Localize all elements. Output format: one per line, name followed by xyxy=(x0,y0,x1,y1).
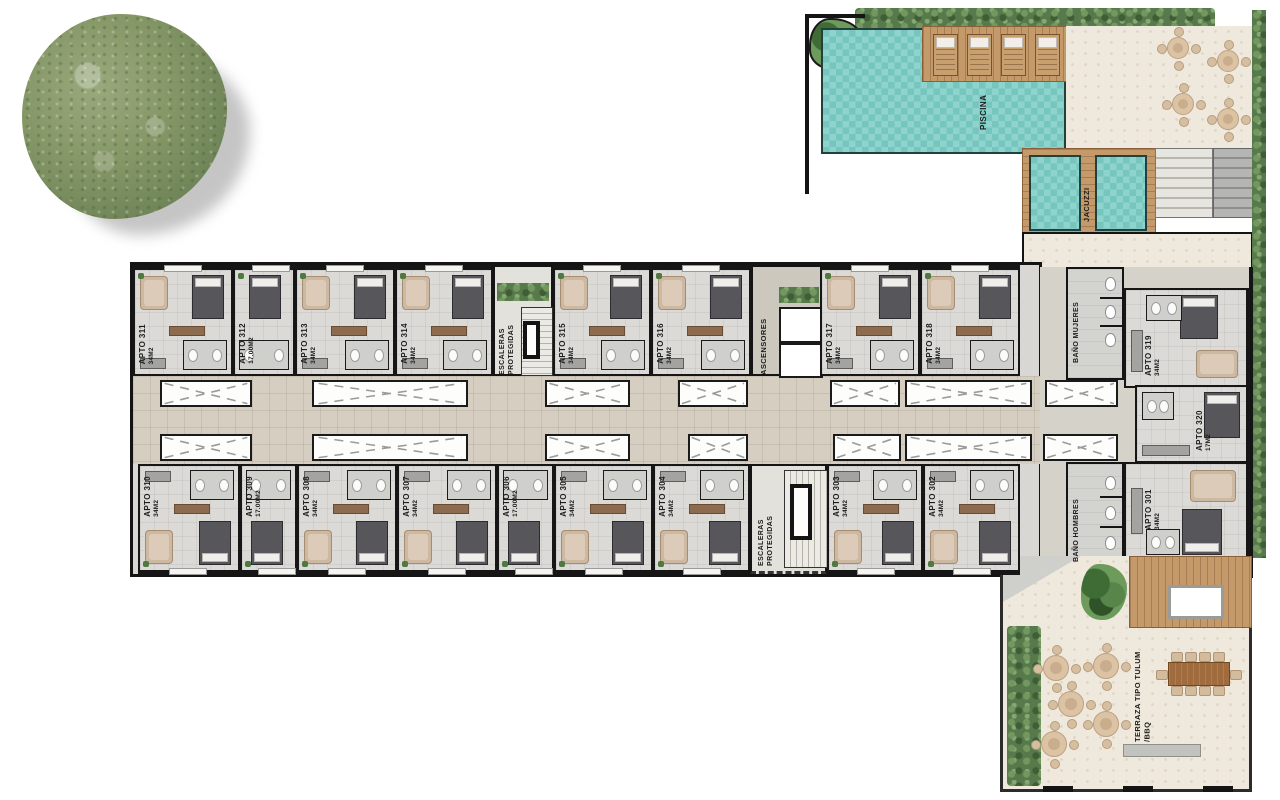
round-table xyxy=(1043,655,1069,681)
unit-id: APTO 313 xyxy=(300,323,309,364)
bed xyxy=(1180,295,1218,339)
sun-lounger xyxy=(1001,34,1026,76)
toilet-icon xyxy=(1105,476,1116,490)
corridor-void xyxy=(678,380,748,407)
sofa xyxy=(140,276,168,310)
apartment-unit: APTO 31034M2 xyxy=(138,464,240,575)
corridor-void xyxy=(833,434,901,461)
window xyxy=(258,568,296,575)
right-edge-hedge xyxy=(1252,10,1266,558)
chair xyxy=(1230,670,1242,680)
corridor-void xyxy=(905,434,1032,461)
apartment-unit: APTO 31434M2 xyxy=(395,265,493,376)
chair xyxy=(1067,681,1077,691)
apartment-unit: APTO 30234M2 xyxy=(923,464,1020,575)
sofa xyxy=(561,530,589,564)
bed xyxy=(456,521,488,565)
unit-size: 34M2 xyxy=(666,323,674,364)
corridor-void xyxy=(1045,380,1118,407)
stairs-top-core: ESCALERASPROTEGIDAS xyxy=(493,265,553,376)
void-x-icon xyxy=(1047,382,1116,405)
chair xyxy=(1196,100,1206,110)
chair xyxy=(1052,645,1062,655)
sofa xyxy=(930,530,958,564)
chair xyxy=(1086,700,1096,710)
void-x-icon xyxy=(1045,436,1116,459)
sofa xyxy=(927,276,955,310)
dining-table xyxy=(1168,662,1230,686)
window xyxy=(857,568,895,575)
unit-size: 34M2 xyxy=(310,323,318,364)
chair xyxy=(1121,720,1131,730)
desk xyxy=(433,504,469,514)
window xyxy=(515,568,553,575)
plant-icon xyxy=(143,561,149,567)
round-table xyxy=(1217,50,1239,72)
window xyxy=(851,265,889,272)
plant-icon xyxy=(928,561,934,567)
desk xyxy=(863,504,899,514)
bathroom xyxy=(347,470,391,500)
apartment-unit: APTO 31834M2 xyxy=(920,265,1020,376)
bathroom xyxy=(601,340,645,370)
terrace-left-hedge xyxy=(1007,626,1041,786)
plant-icon xyxy=(245,561,251,567)
unit-label: APTO 31334M2 xyxy=(300,323,318,364)
corridor-void xyxy=(830,380,900,407)
chair xyxy=(1102,681,1112,691)
unit-id: APTO 312 xyxy=(238,323,247,364)
bathroom xyxy=(603,470,647,500)
bed xyxy=(612,521,644,565)
unit-label: APTO 30134M2 xyxy=(1144,472,1162,530)
bed xyxy=(1182,509,1222,555)
unit-id: APTO 316 xyxy=(656,323,665,364)
corridor-void xyxy=(905,380,1032,407)
plant-icon xyxy=(400,273,406,279)
desk xyxy=(331,326,367,336)
chair xyxy=(1179,83,1189,93)
plant-icon xyxy=(559,561,565,567)
window xyxy=(951,265,989,272)
chair xyxy=(1241,57,1251,67)
plant-icon xyxy=(832,561,838,567)
chair xyxy=(1207,57,1217,67)
desk xyxy=(431,326,467,336)
sofa xyxy=(560,276,588,310)
unit-label: APTO 31934M2 xyxy=(1144,318,1162,376)
bed xyxy=(710,275,742,319)
sun-lounger xyxy=(933,34,958,76)
window xyxy=(585,568,623,575)
unit-size: 17.00M2 xyxy=(255,476,263,517)
window xyxy=(169,568,207,575)
kitchen-counter xyxy=(1142,445,1190,456)
bed xyxy=(709,521,741,565)
chair xyxy=(1199,652,1211,662)
chair xyxy=(1171,652,1183,662)
unit-size: 34M2 xyxy=(568,323,576,364)
chair xyxy=(1048,700,1058,710)
void-x-icon xyxy=(314,382,466,405)
bed xyxy=(979,275,1011,319)
sofa xyxy=(827,276,855,310)
plant-icon xyxy=(300,273,306,279)
void-x-icon xyxy=(835,436,899,459)
stairs-top-landing xyxy=(523,321,540,359)
unit-label: APTO 31834M2 xyxy=(925,323,943,364)
round-table xyxy=(1041,731,1067,757)
chair xyxy=(1171,686,1183,696)
desk xyxy=(590,504,626,514)
plant-icon xyxy=(825,273,831,279)
unit-size: 34M2 xyxy=(668,476,676,517)
elevator-cab-1 xyxy=(779,307,823,343)
chair xyxy=(1083,662,1093,672)
bathroom xyxy=(870,340,914,370)
unit-label: APTO 30917.00M2 xyxy=(245,476,263,517)
stairs-top-planter xyxy=(497,283,549,301)
bathroom xyxy=(873,470,917,500)
bath-women: BAÑO MUJERES xyxy=(1066,267,1124,380)
apartment-unit: APTO 30434M2 xyxy=(653,464,750,575)
unit-id: APTO 314 xyxy=(400,323,409,364)
chair xyxy=(1207,115,1217,125)
corridor-void xyxy=(1043,434,1118,461)
chair xyxy=(1213,652,1225,662)
corridor-void xyxy=(160,434,252,461)
unit-size: 34M2 xyxy=(935,323,943,364)
apartment-unit: APTO 32017M2 xyxy=(1135,385,1250,463)
unit-size: 34M2 xyxy=(835,323,843,364)
bed xyxy=(979,521,1011,565)
void-x-icon xyxy=(907,382,1030,405)
jacuzzi-tub-right xyxy=(1095,155,1147,231)
bathroom xyxy=(701,340,745,370)
window xyxy=(428,568,466,575)
unit-label: APTO 30234M2 xyxy=(928,476,946,517)
chair xyxy=(1224,74,1234,84)
unit-label: APTO 30334M2 xyxy=(832,476,850,517)
window xyxy=(252,265,290,272)
apartment-unit: APTO 31334M2 xyxy=(295,265,395,376)
bed xyxy=(356,521,388,565)
chair xyxy=(1213,686,1225,696)
corridor-void xyxy=(312,434,468,461)
corridor-void xyxy=(688,434,748,461)
window xyxy=(683,568,721,575)
desk xyxy=(333,504,369,514)
kitchen-counter xyxy=(1131,488,1143,534)
round-table xyxy=(1172,93,1194,115)
apartment-unit: APTO 30734M2 xyxy=(397,464,497,575)
apartment-unit: APTO 31534M2 xyxy=(553,265,651,376)
floor-plan-canvas: PISCINA JACUZZI ESCALERASPROTEGIDAS xyxy=(0,0,1280,800)
unit-label: APTO 31434M2 xyxy=(400,323,418,364)
steps-light xyxy=(1155,148,1213,218)
stairs-bottom-core: ESCALERASPROTEGIDAS xyxy=(750,464,827,574)
chair xyxy=(1179,117,1189,127)
unit-id: APTO 303 xyxy=(832,476,841,517)
chair xyxy=(1174,61,1184,71)
apartment-unit: APTO 30917.00M2 xyxy=(240,464,297,575)
bathroom xyxy=(700,470,744,500)
jacuzzi-label: JACUZZI xyxy=(1082,162,1091,222)
chair xyxy=(1083,720,1093,730)
plant-icon xyxy=(656,273,662,279)
sun-lounger xyxy=(967,34,992,76)
window xyxy=(682,265,720,272)
chair xyxy=(1185,652,1197,662)
chair xyxy=(1033,664,1043,674)
chair xyxy=(1199,686,1211,696)
elevators-core: ASCENSORES xyxy=(751,265,822,376)
terrace-plant xyxy=(1081,564,1127,620)
unit-id: APTO 307 xyxy=(402,476,411,517)
sofa xyxy=(660,530,688,564)
void-x-icon xyxy=(547,382,628,405)
window xyxy=(425,265,463,272)
sofa xyxy=(145,530,173,564)
sun-lounger xyxy=(1035,34,1060,76)
unit-size: 34M2 xyxy=(938,476,946,517)
void-x-icon xyxy=(832,382,898,405)
toilet-icon xyxy=(1105,277,1116,291)
stairs-bottom-label: ESCALERASPROTEGIDAS xyxy=(758,480,776,566)
sofa xyxy=(402,276,430,310)
void-x-icon xyxy=(680,382,746,405)
sofa xyxy=(302,276,330,310)
stall-wall xyxy=(1100,325,1122,327)
chair xyxy=(1102,739,1112,749)
bathroom xyxy=(970,340,1014,370)
unit-size: 34M2 xyxy=(842,476,850,517)
unit-size: 17.00M2 xyxy=(512,476,520,517)
toilet-icon xyxy=(1105,305,1116,319)
jacuzzi-tub-left xyxy=(1029,155,1081,231)
bathroom xyxy=(443,340,487,370)
elevator-cab-2 xyxy=(779,343,823,378)
apartment-unit: APTO 30534M2 xyxy=(554,464,653,575)
bed xyxy=(199,521,231,565)
apartment-unit: APTO 31734M2 xyxy=(820,265,920,376)
bathroom xyxy=(1146,529,1180,555)
corridor-void xyxy=(312,380,468,407)
void-x-icon xyxy=(162,436,250,459)
unit-label: APTO 31034M2 xyxy=(143,476,161,517)
chair xyxy=(1185,686,1197,696)
chair xyxy=(1102,643,1112,653)
unit-label: APTO 31217.00M2 xyxy=(238,323,256,364)
bath-men-label: BAÑO HOMBRES xyxy=(1073,488,1082,562)
bathroom xyxy=(970,470,1014,500)
apartment-unit: APTO 31934M2 xyxy=(1124,288,1250,388)
elevators-planter xyxy=(779,287,819,303)
unit-label: APTO 30434M2 xyxy=(658,476,676,517)
desk xyxy=(856,326,892,336)
pool-label: PISCINA xyxy=(979,80,989,130)
unit-label: APTO 32017M2 xyxy=(1195,395,1213,451)
bed xyxy=(249,275,281,319)
unit-id: APTO 318 xyxy=(925,323,934,364)
sofa xyxy=(304,530,332,564)
desk xyxy=(687,326,723,336)
plant-icon xyxy=(925,273,931,279)
unit-size: 34M2 xyxy=(153,476,161,517)
unit-id: APTO 306 xyxy=(502,476,511,517)
chair xyxy=(1157,44,1167,54)
tulum-terrace-label: TERRAZA TIPO TULUM/BBQ xyxy=(1133,646,1152,742)
stairs-top-label: ESCALERASPROTEGIDAS xyxy=(499,303,517,375)
bbq-deck xyxy=(1129,556,1252,628)
chair xyxy=(1050,759,1060,769)
bathroom xyxy=(1142,392,1174,420)
chair xyxy=(1071,664,1081,674)
bbq-counter xyxy=(1168,585,1224,619)
plant-icon xyxy=(302,561,308,567)
unit-label: APTO 31634M2 xyxy=(656,323,674,364)
unit-label: APTO 30734M2 xyxy=(402,476,420,517)
apartment-unit: APTO 30134M2 xyxy=(1124,462,1250,562)
chair xyxy=(1162,100,1172,110)
kitchen-counter xyxy=(1131,330,1143,372)
desk xyxy=(174,504,210,514)
terrace-window xyxy=(1123,786,1153,792)
plant-icon xyxy=(402,561,408,567)
desk xyxy=(956,326,992,336)
chair xyxy=(1174,27,1184,37)
bench xyxy=(1123,744,1201,757)
bed xyxy=(452,275,484,319)
plant-icon xyxy=(138,273,144,279)
unit-label: APTO 31534M2 xyxy=(558,323,576,364)
bath-women-label: BAÑO MUJERES xyxy=(1073,293,1082,363)
plant-icon xyxy=(558,273,564,279)
round-table xyxy=(1093,711,1119,737)
desk xyxy=(589,326,625,336)
bathroom xyxy=(345,340,389,370)
stall-wall xyxy=(1100,526,1122,528)
apartment-unit: APTO 30617.00M2 xyxy=(497,464,554,575)
unit-id: APTO 308 xyxy=(302,476,311,517)
unit-id: APTO 304 xyxy=(658,476,667,517)
chair xyxy=(1031,740,1041,750)
unit-id: APTO 315 xyxy=(558,323,567,364)
round-table xyxy=(1058,691,1084,717)
bed xyxy=(508,521,540,565)
unit-size: 34M2 xyxy=(410,323,418,364)
tulum-terrace: TERRAZA TIPO TULUM/BBQ xyxy=(1000,556,1252,792)
elevators-label: ASCENSORES xyxy=(759,305,768,375)
desk xyxy=(959,504,995,514)
unit-id: APTO 317 xyxy=(825,323,834,364)
sofa xyxy=(658,276,686,310)
window xyxy=(583,265,621,272)
apartment-unit: APTO 30334M2 xyxy=(827,464,923,575)
stall-wall xyxy=(1100,496,1122,498)
chair xyxy=(1069,740,1079,750)
chair xyxy=(1156,670,1168,680)
chair xyxy=(1224,40,1234,50)
window xyxy=(164,265,202,272)
window xyxy=(953,568,991,575)
chair xyxy=(1102,701,1112,711)
corridor-void xyxy=(545,434,630,461)
unit-label: APTO 31734M2 xyxy=(825,323,843,364)
sofa xyxy=(834,530,862,564)
stairs-bottom-landing xyxy=(790,484,812,540)
sofa xyxy=(404,530,432,564)
stall-wall xyxy=(1100,297,1122,299)
window xyxy=(328,568,366,575)
pool-lounger-deck xyxy=(922,26,1080,82)
plant-icon xyxy=(658,561,664,567)
unit-id: APTO 302 xyxy=(928,476,937,517)
bed xyxy=(610,275,642,319)
bed xyxy=(192,275,224,319)
unit-id: APTO 310 xyxy=(143,476,152,517)
bed xyxy=(879,275,911,319)
unit-label: APTO 30617.00M2 xyxy=(502,476,520,517)
void-x-icon xyxy=(162,382,250,405)
desk xyxy=(689,504,725,514)
chair xyxy=(1224,132,1234,142)
apartment-unit: APTO 31217.00M2 xyxy=(233,265,295,376)
bed xyxy=(882,521,914,565)
chair xyxy=(1241,115,1251,125)
terrace-window xyxy=(1043,786,1073,792)
sofa xyxy=(1190,470,1236,502)
unit-label: APTO 31134M2 xyxy=(138,324,156,364)
chair xyxy=(1121,662,1131,672)
unit-label: APTO 30834M2 xyxy=(302,476,320,517)
void-x-icon xyxy=(314,436,466,459)
unit-id: APTO 305 xyxy=(559,476,568,517)
window xyxy=(326,265,364,272)
corridor-void xyxy=(545,380,630,407)
plant-icon xyxy=(502,561,508,567)
unit-size: 34M2 xyxy=(412,476,420,517)
chair xyxy=(1052,683,1062,693)
bathroom xyxy=(447,470,491,500)
toilet-icon xyxy=(1105,333,1116,347)
unit-label: APTO 30534M2 xyxy=(559,476,577,517)
unit-size: 34M2 xyxy=(312,476,320,517)
bathroom xyxy=(183,340,227,370)
unit-size: 17.00M2 xyxy=(248,323,256,364)
apartment-unit: APTO 30834M2 xyxy=(297,464,397,575)
round-table xyxy=(1093,653,1119,679)
steps-dark xyxy=(1213,148,1253,218)
toilet-icon xyxy=(1105,536,1116,550)
void-x-icon xyxy=(907,436,1030,459)
bed xyxy=(354,275,386,319)
chair xyxy=(1224,98,1234,108)
plant-icon xyxy=(238,273,244,279)
unit-id: APTO 311 xyxy=(138,324,147,364)
terrace-window xyxy=(1203,786,1233,792)
bathroom xyxy=(190,470,234,500)
void-x-icon xyxy=(547,436,628,459)
round-table xyxy=(1217,108,1239,130)
sofa xyxy=(1196,350,1238,378)
desk xyxy=(169,326,205,336)
chair xyxy=(1050,721,1060,731)
round-table xyxy=(1167,37,1189,59)
apartment-unit: APTO 31634M2 xyxy=(651,265,751,376)
corridor-void xyxy=(160,380,252,407)
apartment-unit: APTO 31134M2 xyxy=(133,265,233,376)
